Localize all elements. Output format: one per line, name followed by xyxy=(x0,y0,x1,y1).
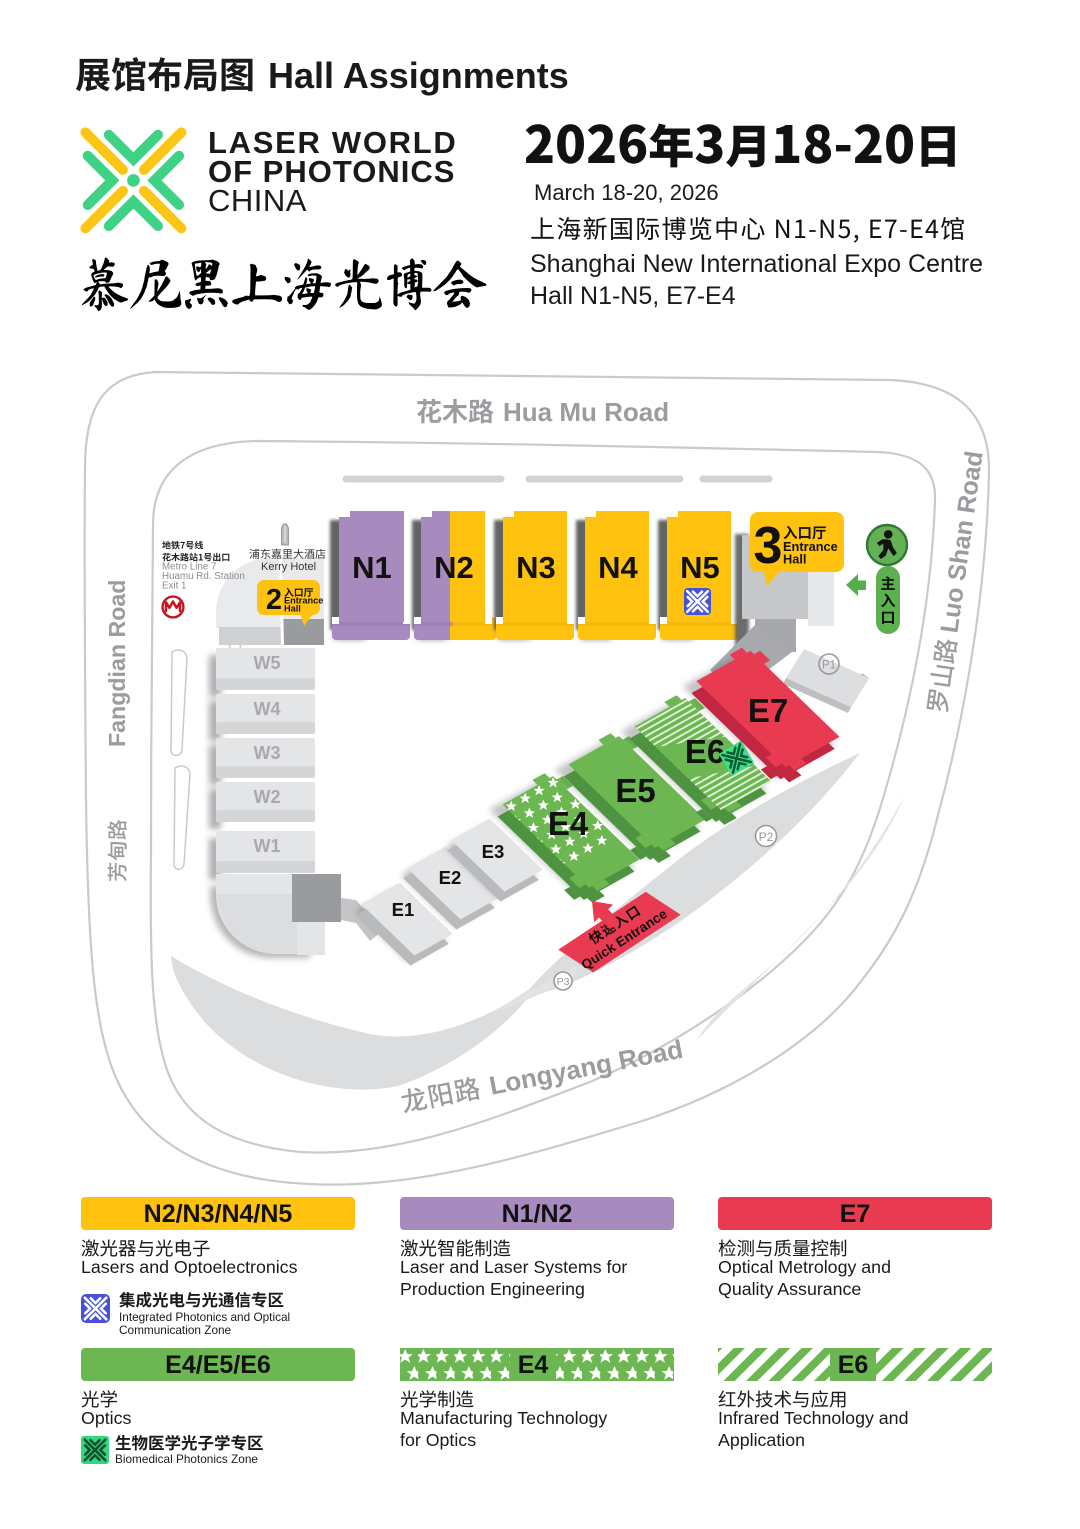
svg-text:Integrated Photonics and Optic: Integrated Photonics and Optical xyxy=(119,1310,290,1324)
svg-text:W3: W3 xyxy=(254,743,281,763)
svg-text:N2: N2 xyxy=(434,550,474,585)
svg-text:Hall Assignments: Hall Assignments xyxy=(268,55,569,96)
svg-text:Lasers and Optoelectronics: Lasers and Optoelectronics xyxy=(81,1257,298,1277)
svg-text:Optics: Optics xyxy=(81,1408,132,1428)
svg-text:Production Engineering: Production Engineering xyxy=(400,1279,585,1299)
svg-text:Hall: Hall xyxy=(284,604,301,614)
svg-text:P1: P1 xyxy=(822,660,836,672)
svg-text:Application: Application xyxy=(718,1430,805,1450)
svg-text:E4: E4 xyxy=(548,805,589,842)
svg-text:Communication Zone: Communication Zone xyxy=(119,1323,232,1337)
svg-text:Shanghai New International Exp: Shanghai New International Expo Centre xyxy=(530,250,983,278)
svg-text:3: 3 xyxy=(754,517,783,575)
svg-text:W2: W2 xyxy=(254,787,281,807)
svg-text:Exit 1: Exit 1 xyxy=(162,581,187,592)
svg-text:E6: E6 xyxy=(838,1351,869,1379)
svg-text:March 18-20, 2026: March 18-20, 2026 xyxy=(534,180,719,205)
svg-text:P3: P3 xyxy=(557,976,570,988)
svg-text:for Optics: for Optics xyxy=(400,1430,476,1450)
svg-text:W1: W1 xyxy=(254,836,281,856)
svg-text:E4: E4 xyxy=(518,1351,549,1379)
svg-text:N2/N3/N4/N5: N2/N3/N4/N5 xyxy=(144,1200,293,1228)
svg-text:W5: W5 xyxy=(254,653,281,673)
svg-text:E1: E1 xyxy=(392,899,415,920)
svg-text:E6: E6 xyxy=(685,733,725,770)
svg-text:2: 2 xyxy=(266,584,282,616)
svg-text:CHINA: CHINA xyxy=(208,183,307,218)
svg-text:E7: E7 xyxy=(840,1200,871,1228)
svg-text:N3: N3 xyxy=(516,550,556,585)
svg-text:P2: P2 xyxy=(759,830,774,844)
svg-text:E2: E2 xyxy=(439,867,462,888)
svg-text:Hall N1-N5, E7-E4: Hall N1-N5, E7-E4 xyxy=(530,282,736,310)
svg-text:Manufacturing Technology: Manufacturing Technology xyxy=(400,1408,607,1428)
svg-text:Fangdian Road: Fangdian Road xyxy=(104,580,130,747)
svg-text:N1: N1 xyxy=(352,550,392,585)
svg-text:N5: N5 xyxy=(680,550,720,585)
svg-text:Hall: Hall xyxy=(783,552,806,567)
svg-text:N1/N2: N1/N2 xyxy=(502,1200,573,1228)
svg-text:N4: N4 xyxy=(598,550,638,585)
svg-text:W4: W4 xyxy=(254,699,281,719)
svg-text:E7: E7 xyxy=(748,692,788,729)
svg-text:Infrared Technology and: Infrared Technology and xyxy=(718,1408,908,1428)
svg-text:Quality Assurance: Quality Assurance xyxy=(718,1279,861,1299)
svg-text:Kerry Hotel: Kerry Hotel xyxy=(261,561,316,573)
svg-text:Optical Metrology and: Optical Metrology and xyxy=(718,1257,891,1277)
svg-text:E4/E5/E6: E4/E5/E6 xyxy=(165,1351,271,1379)
svg-text:Biomedical Photonics Zone: Biomedical Photonics Zone xyxy=(115,1452,258,1466)
svg-text:E5: E5 xyxy=(615,772,655,809)
svg-text:Laser and Laser Systems for: Laser and Laser Systems for xyxy=(400,1257,627,1277)
svg-text:E3: E3 xyxy=(482,841,505,862)
svg-text:Hua Mu Road: Hua Mu Road xyxy=(503,397,669,427)
